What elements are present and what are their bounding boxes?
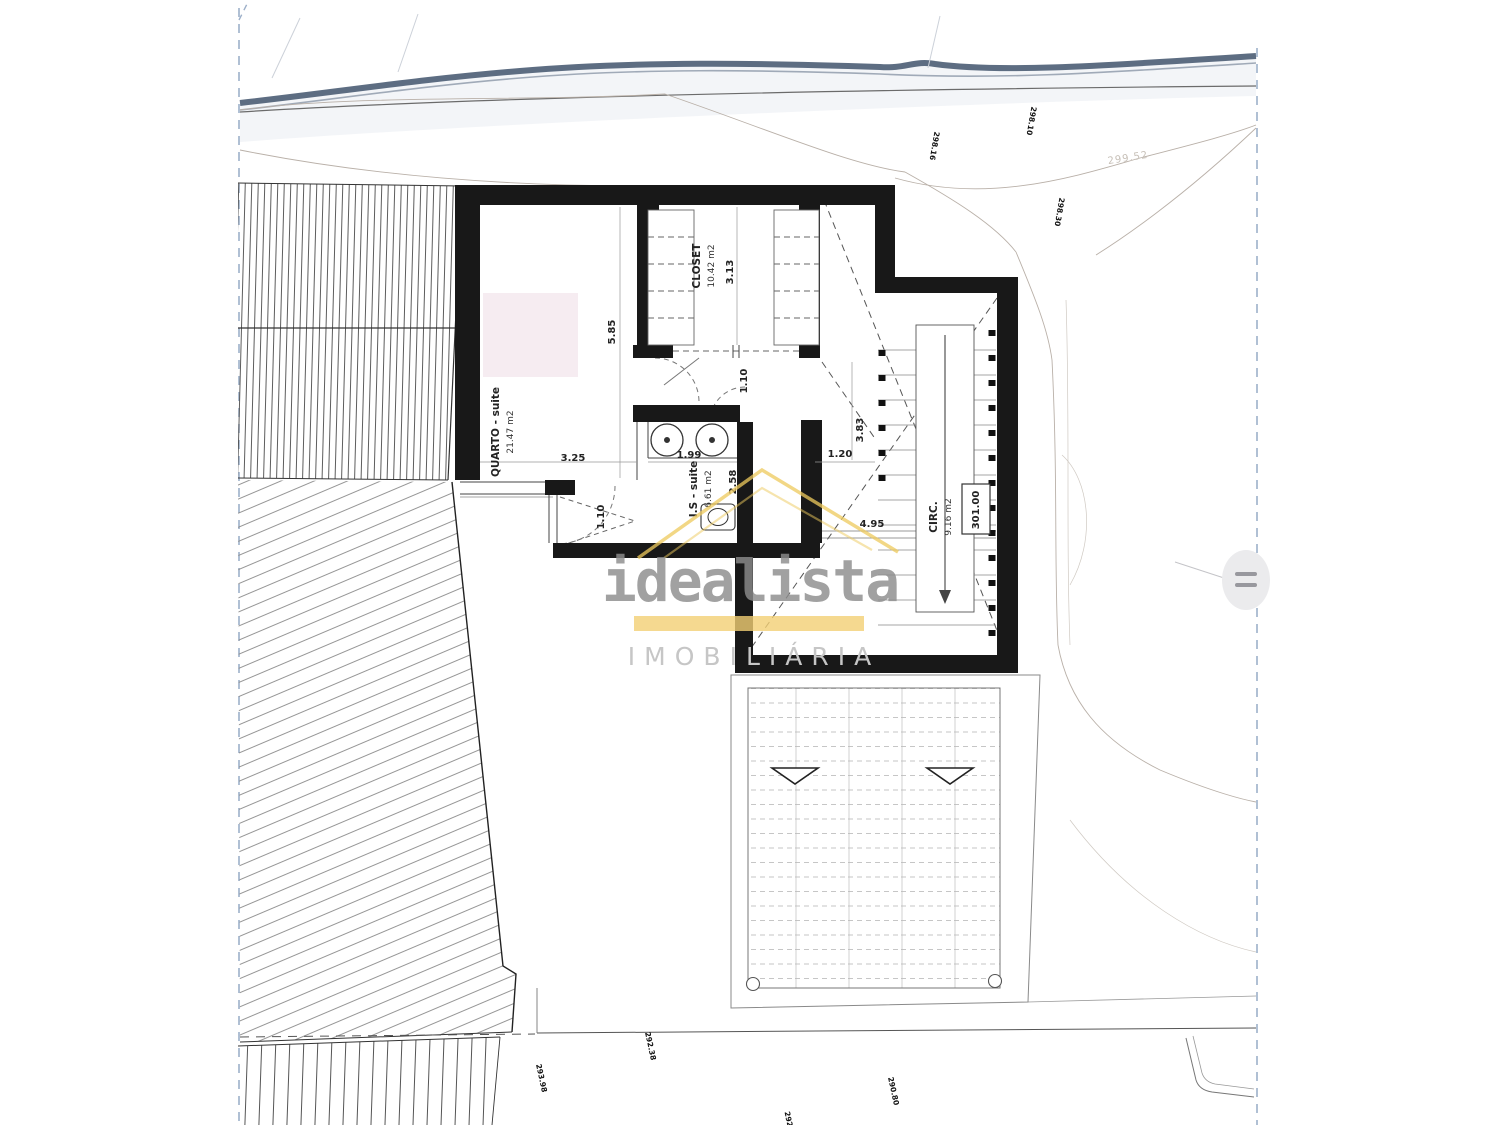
elevation-label: 292.38 <box>643 1031 658 1061</box>
hatch-roof-lower <box>238 1037 500 1125</box>
deck-post-right <box>989 975 1002 988</box>
contour-elevation-label: 299.52 <box>1107 150 1149 167</box>
room-area-closet: 10.42 m2 <box>707 244 717 287</box>
elevation-label: 290.80 <box>886 1076 901 1106</box>
elevation-label: 298.10 <box>1025 106 1039 136</box>
hatch-slope-mid <box>238 480 516 1042</box>
room-label-is-suite: I.S - suite <box>688 461 700 518</box>
terrace-deck <box>731 675 1040 1008</box>
menu-bubble[interactable] <box>1175 550 1270 610</box>
floorplan-photo: 301.00 QUARTO - suite 21.47 m2 CLOSET 10… <box>0 0 1500 1125</box>
elevation-label: 298.30 <box>1053 197 1067 227</box>
room-label-circ: CIRC. <box>928 501 940 532</box>
watermark-underline <box>634 616 864 631</box>
room-label-closet: CLOSET <box>691 243 703 289</box>
dim-closet-height: 3.13 <box>725 260 736 285</box>
level-label: 301.00 <box>971 491 982 530</box>
dim-quarto-width: 3.25 <box>561 453 586 464</box>
elevation-label: 292 <box>782 1111 794 1125</box>
terrain-top <box>240 14 1256 142</box>
dim-closet-door: 1.10 <box>739 369 750 394</box>
dim-quarto-height: 5.85 <box>607 320 618 345</box>
room-area-quarto: 21.47 m2 <box>506 410 516 453</box>
level-marker: 301.00 <box>962 484 990 534</box>
elevation-label: 298.16 <box>928 131 942 161</box>
deck-post-left <box>747 978 760 991</box>
room-area-circ: 9.16 m2 <box>944 498 954 535</box>
hatch-roof-upper <box>238 183 462 480</box>
dim-circ-length: 4.95 <box>860 519 885 530</box>
watermark-brand: idealista <box>602 547 898 615</box>
dim-hall-gap: 1.20 <box>828 449 853 460</box>
watermark-subtitle: IMOBILIÁRIA <box>628 642 880 671</box>
dim-window: 1.10 <box>596 505 607 530</box>
dim-hall-height: 3.83 <box>855 418 866 443</box>
room-label-quarto: QUARTO - suite <box>490 387 502 477</box>
room-area-is-suite: 6.61 m2 <box>704 470 714 507</box>
dimension-labels: 5.85 3.13 1.10 3.25 1.99 2.58 1.20 3.83 … <box>561 260 885 530</box>
dim-vanity: 1.99 <box>677 450 702 461</box>
elevation-label: 293.98 <box>534 1063 549 1093</box>
bed-area <box>483 293 578 377</box>
